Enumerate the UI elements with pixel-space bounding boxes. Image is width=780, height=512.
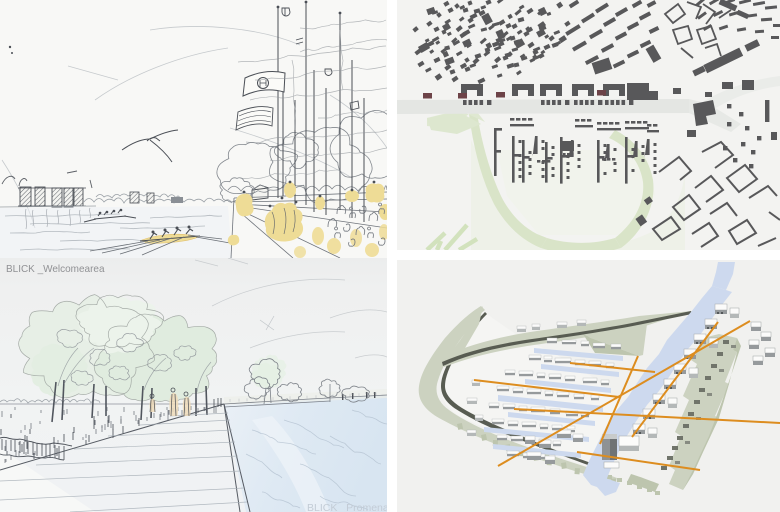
svg-text:BLICK _Promenade |: BLICK _Promenade | <box>307 502 387 512</box>
